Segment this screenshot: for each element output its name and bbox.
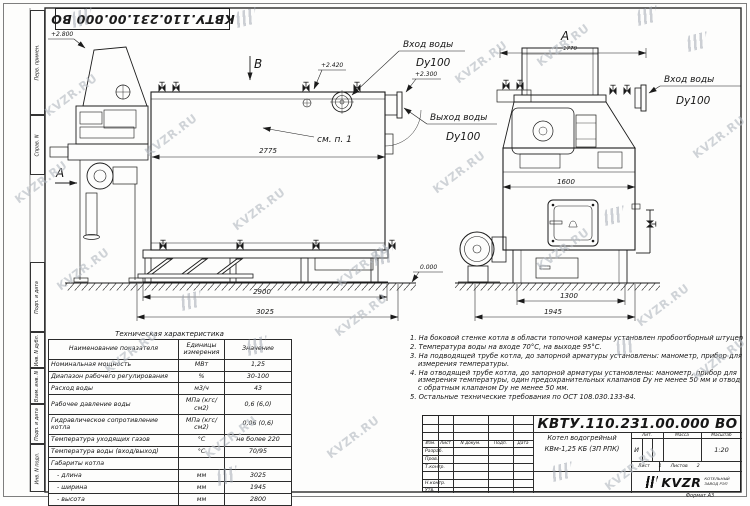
header-podp: Подп.: [488, 441, 513, 446]
table-cell: Температура воды (вход/выход): [49, 446, 179, 458]
table-cell: Габариты котла: [49, 458, 179, 470]
lit-header: Лит.: [631, 433, 663, 438]
table-cell: 30-100: [225, 371, 292, 383]
table-row: Рабочее давление водыМПа (кгс/см2)0,6 (6…: [49, 395, 292, 415]
margin-box-inv-podl: Инв. N подл.: [30, 444, 45, 492]
see-note-label: см. п. 1: [317, 135, 352, 145]
margin-box-inv-dubl: Инв. N дубл.: [30, 332, 45, 368]
table-cell: мм: [179, 494, 225, 506]
row-nkontr: Н.контр.: [425, 481, 446, 486]
row-prov: Пров.: [425, 457, 438, 462]
table-cell: 1945: [225, 482, 292, 494]
boiler-body-side: [151, 90, 421, 250]
valve-icon: [646, 221, 656, 228]
table-header-cell: Значение: [225, 340, 292, 360]
dim-1600: 1600: [557, 178, 575, 186]
technical-notes: 1. На боковой стенке котла в области топ…: [410, 335, 744, 403]
margin-box-podp-data-2: Подп. и дата: [30, 404, 45, 444]
note-item: 4. На отводящей трубе котла, до запорной…: [410, 370, 744, 394]
section-b-label: B: [254, 57, 262, 71]
sheets-value: 2: [697, 464, 700, 469]
scale-value: 1:20: [701, 438, 742, 461]
format-label: Формат А3: [658, 493, 742, 499]
margin-label: Инв. N дубл.: [35, 334, 40, 365]
table-cell: 2800: [225, 494, 292, 506]
valve-icon: [303, 82, 310, 92]
elevation-hood-label: +2.800: [51, 31, 73, 38]
inlet-water-label-front: Вход воды: [664, 75, 714, 85]
table-row: Расход водым3/ч43: [49, 383, 292, 395]
inlet-dn-label: Dy100: [416, 57, 451, 69]
elevation-top-label: +2.420: [321, 62, 343, 69]
table-cell: мм: [179, 470, 225, 482]
sheet-label: Лист: [638, 464, 650, 469]
table-row: Номинальная мощностьМВт1,25: [49, 359, 292, 371]
table-row: - длинамм3025: [49, 470, 292, 482]
table-cell: Гидравлическое сопротивление котла: [49, 415, 179, 435]
inlet-water-label: Вход воды: [403, 40, 453, 50]
company-name-line2: ЗАВОД РЭП: [704, 482, 729, 487]
doc-number-stamp-text: КВТУ.110.231.00.000 ВО: [51, 12, 235, 27]
drawing-sheet: +2.800 +2.420 +2.300 0.000 B A Вход воды…: [0, 0, 750, 500]
boiler-body-front: [497, 90, 635, 250]
margin-label: Взам. инв. N: [35, 370, 40, 401]
burner-assembly: [50, 106, 148, 282]
outlet-water-label: Выход воды: [430, 113, 487, 123]
front-view: A 1770 1600 1300 1945 Вход воды Dy100: [455, 29, 741, 321]
outlet-dn-label: Dy100: [446, 131, 481, 143]
product-name-line2: КВм-1,25 КБ (ЗП РПК): [533, 444, 631, 455]
table-cell: Рабочее давление воды: [49, 395, 179, 415]
dim-2900: 2900: [253, 288, 271, 296]
blower-fan: [458, 232, 506, 282]
table-cell: [179, 458, 225, 470]
table-cell: МПа (кгс/см2): [179, 415, 225, 435]
lit-value: И: [631, 438, 642, 461]
note-item: 3. На подводящей трубе котла, до запорно…: [410, 353, 744, 369]
valve-icon: [503, 80, 510, 90]
margin-label: Подп. и дата: [35, 281, 40, 314]
scale-header: Масштаб: [701, 433, 742, 438]
table-cell: 1,25: [225, 359, 292, 371]
ground-line-front: [455, 283, 660, 291]
table-cell: не более 220: [225, 434, 292, 446]
table-cell: 70/95: [225, 446, 292, 458]
doc-number: КВТУ.110.231.00.000 ВО: [533, 416, 742, 432]
tech-characteristics-table: Техническая характеристика Наименование …: [48, 330, 291, 506]
burner-hood: [83, 47, 147, 106]
table-cell: - ширина: [49, 482, 179, 494]
valve-icon: [159, 82, 166, 92]
margin-label: Перв. примен.: [35, 44, 40, 80]
sheet-row: Лист 1 Листов 2: [631, 461, 742, 471]
table-cell: 3025: [225, 470, 292, 482]
valve-icon: [237, 240, 244, 250]
table-cell: - высота: [49, 494, 179, 506]
table-cell: %: [179, 371, 225, 383]
boiler-skid-side: [138, 250, 388, 282]
valve-icon: [160, 240, 167, 250]
table-row: Диапазон рабочего регулирования%30-100: [49, 371, 292, 383]
title-block: КВТУ.110.231.00.000 ВО Изм. Лист N докум…: [422, 415, 741, 492]
header-data: Дата: [513, 441, 533, 446]
margin-box-sprav-n: Справ. N: [30, 115, 45, 175]
inlet-dn-label-front: Dy100: [676, 95, 711, 107]
elevation-outlet-label: +2.300: [415, 71, 437, 78]
table-row: - высотамм2800: [49, 494, 292, 506]
table-cell: 0,06 (0,6): [225, 415, 292, 435]
tech-table-title: Техническая характеристика: [48, 330, 291, 338]
elevation-ground-label: 0.000: [420, 264, 437, 271]
dim-2775: 2775: [259, 147, 277, 155]
table-cell: °С: [179, 446, 225, 458]
kvzr-logo-icon: [643, 476, 658, 488]
tech-table-rows: Номинальная мощностьМВт1,25Диапазон рабо…: [49, 359, 292, 505]
table-cell: м3/ч: [179, 383, 225, 395]
header-list: Лист: [438, 441, 453, 446]
table-cell: Номинальная мощность: [49, 359, 179, 371]
product-name: Котел водогрейный КВм-1,25 КБ (ЗП РПК): [533, 433, 631, 455]
margin-label: Справ. N: [35, 134, 40, 156]
header-izm: Изм.: [423, 441, 438, 446]
table-cell: Диапазон рабочего регулирования: [49, 371, 179, 383]
dim-1770: 1770: [563, 46, 577, 52]
margin-label: Подп. и дата: [35, 408, 40, 441]
note-item: 1. На боковой стенке котла в области топ…: [410, 335, 744, 343]
table-row: Температура уходящих газов°Сне более 220: [49, 434, 292, 446]
sheet-value: 1: [659, 464, 662, 469]
valve-icon: [173, 82, 180, 92]
row-tkontr: Т.контр.: [425, 465, 445, 470]
margin-box-perv-primen: Перв. примен.: [30, 10, 45, 115]
inlet-nozzle-front: [635, 85, 646, 111]
margin-box-podp-data-1: Подп. и дата: [30, 262, 45, 332]
note-item: 5. Остальные технические требования по О…: [410, 394, 744, 402]
valve-icon: [610, 85, 617, 95]
product-name-line1: Котел водогрейный: [533, 433, 631, 444]
table-row: - ширинамм1945: [49, 482, 292, 494]
front-view-dimensions: [475, 48, 741, 321]
table-cell: °С: [179, 434, 225, 446]
table-cell: - длина: [49, 470, 179, 482]
table-cell: МПа (кгс/см2): [179, 395, 225, 415]
valve-icon: [624, 85, 631, 95]
doc-number-stamp: КВТУ.110.231.00.000 ВО: [55, 8, 230, 30]
furnace-door: [548, 200, 598, 246]
row-utv: Утв.: [425, 488, 435, 493]
burner-front: [512, 108, 596, 168]
view-a-label: A: [560, 29, 569, 43]
company-name: КОТЕЛЬНЫЙ ЗАВОД РЭП: [704, 477, 729, 487]
table-cell: МВт: [179, 359, 225, 371]
table-header-cell: Наименование показателя: [49, 340, 179, 360]
dim-3025: 3025: [256, 308, 274, 316]
side-view: +2.800 +2.420 +2.300 0.000 B A Вход воды…: [48, 31, 497, 321]
valve-icon: [313, 240, 320, 250]
table-cell: Температура уходящих газов: [49, 434, 179, 446]
table-cell: [225, 458, 292, 470]
table-cell: мм: [179, 482, 225, 494]
table-row: Температура воды (вход/выход)°С70/95: [49, 446, 292, 458]
margin-box-vzam-inv: Взам. инв. N: [30, 368, 45, 404]
side-view-dimensions: [48, 39, 497, 321]
section-a-label: A: [55, 166, 64, 180]
row-razrab: Разраб.: [425, 449, 443, 454]
ground-line: [65, 283, 416, 291]
chimney: [514, 48, 606, 102]
sheets-label: Листов: [671, 464, 688, 469]
table-cell: Расход воды: [49, 383, 179, 395]
company-logo: KVZR КОТЕЛЬНЫЙ ЗАВОД РЭП: [631, 471, 742, 493]
kvzr-logo-text: KVZR: [661, 475, 701, 490]
table-header-row: Наименование показателя Единицы измерени…: [49, 340, 292, 360]
dim-1945: 1945: [544, 308, 562, 316]
dim-1300: 1300: [560, 292, 578, 300]
mass-header: Масса: [663, 433, 701, 438]
table-row: Габариты котла: [49, 458, 292, 470]
table-header-cell: Единицы измерения: [179, 340, 225, 360]
boiler-skid-front: [513, 250, 627, 283]
table-row: Гидравлическое сопротивление котлаМПа (к…: [49, 415, 292, 435]
table-cell: 0,6 (6,0): [225, 395, 292, 415]
header-ndokum: N докум.: [453, 441, 488, 446]
valve-icon: [389, 240, 396, 250]
table-cell: 43: [225, 383, 292, 395]
note-item: 2. Температура воды на входе 70°С, на вы…: [410, 344, 744, 352]
margin-label: Инв. N подл.: [35, 452, 40, 484]
